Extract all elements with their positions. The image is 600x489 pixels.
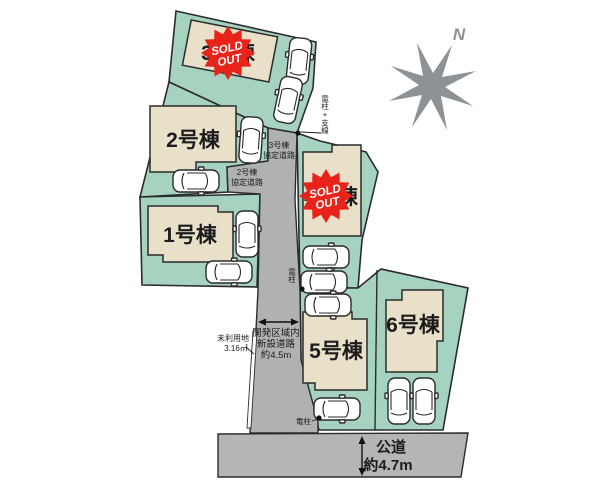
public-road-band [218, 433, 468, 477]
car-icon [385, 378, 413, 424]
utility-pole-dot [299, 286, 304, 291]
car-icon [410, 378, 438, 424]
car-icon [233, 211, 261, 257]
site-plan-canvas: 3号棟 2号棟 1号棟 4号棟 5号棟 6号棟 SOLD OUT SOLD OU… [0, 0, 600, 489]
car-icon [305, 291, 351, 319]
utility-pole-guy-label: 電柱+支線 [320, 95, 329, 135]
public-road-label-line1: 公道 [376, 438, 406, 456]
public-road-label-line2: 約4.7m [363, 456, 412, 474]
utility-pole-dot [316, 415, 321, 420]
new-road-label-line1: 開発区域内 [252, 327, 300, 339]
agreement-road-3-label-line1: 3号棟 [269, 140, 289, 150]
car-icon [303, 243, 349, 271]
building-2-label: 2号棟 [166, 128, 221, 152]
compass-north-label: N [453, 25, 466, 44]
car-icon [206, 258, 252, 286]
agreement-road-2-label-line1: 2号棟 [237, 167, 257, 177]
agreement-road-2-label-line2: 協定道路 [231, 177, 263, 187]
utility-pole-bottom-label: 電柱 [296, 416, 311, 426]
car-icon [301, 268, 347, 296]
unused-land-label-line1: 未利用地 [217, 333, 249, 343]
building-5-label: 5号棟 [309, 339, 364, 363]
new-road-label-line2: 新設道路 [257, 338, 296, 350]
utility-pole-dot [295, 130, 300, 135]
agreement-road-3-label-line2: 協定道路 [263, 150, 295, 160]
unused-land-label-line2: 3.16㎡ [224, 344, 248, 353]
car-icon [173, 167, 219, 195]
building-6-label: 6号棟 [386, 313, 441, 337]
site-plan: 3号棟 2号棟 1号棟 4号棟 5号棟 6号棟 SOLD OUT SOLD OU… [0, 0, 600, 489]
utility-pole-mid-label: 電柱 [287, 268, 296, 285]
new-road-label-line3: 約4.5m [261, 349, 292, 361]
building-1-label: 1号棟 [163, 223, 218, 247]
